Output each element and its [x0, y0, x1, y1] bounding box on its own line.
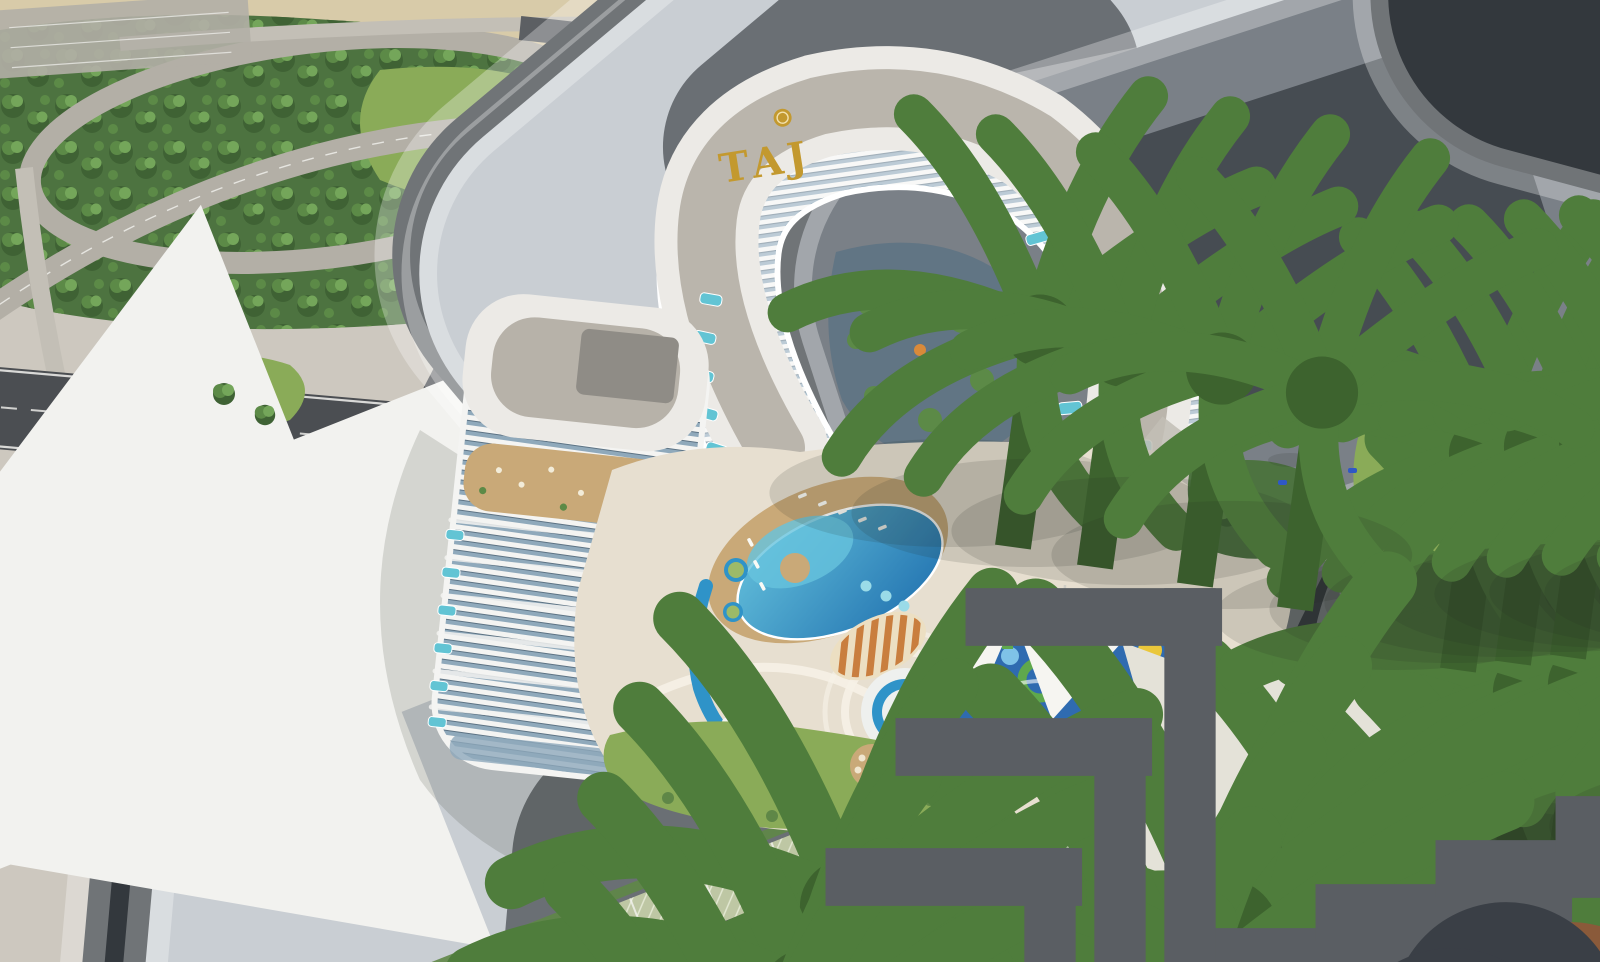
- pool-palm-island: [780, 553, 810, 583]
- left-tower-roof-plant: [575, 328, 679, 404]
- tree: [255, 405, 275, 425]
- tree: [213, 383, 235, 405]
- aerial-render: TAJ: [0, 0, 1600, 962]
